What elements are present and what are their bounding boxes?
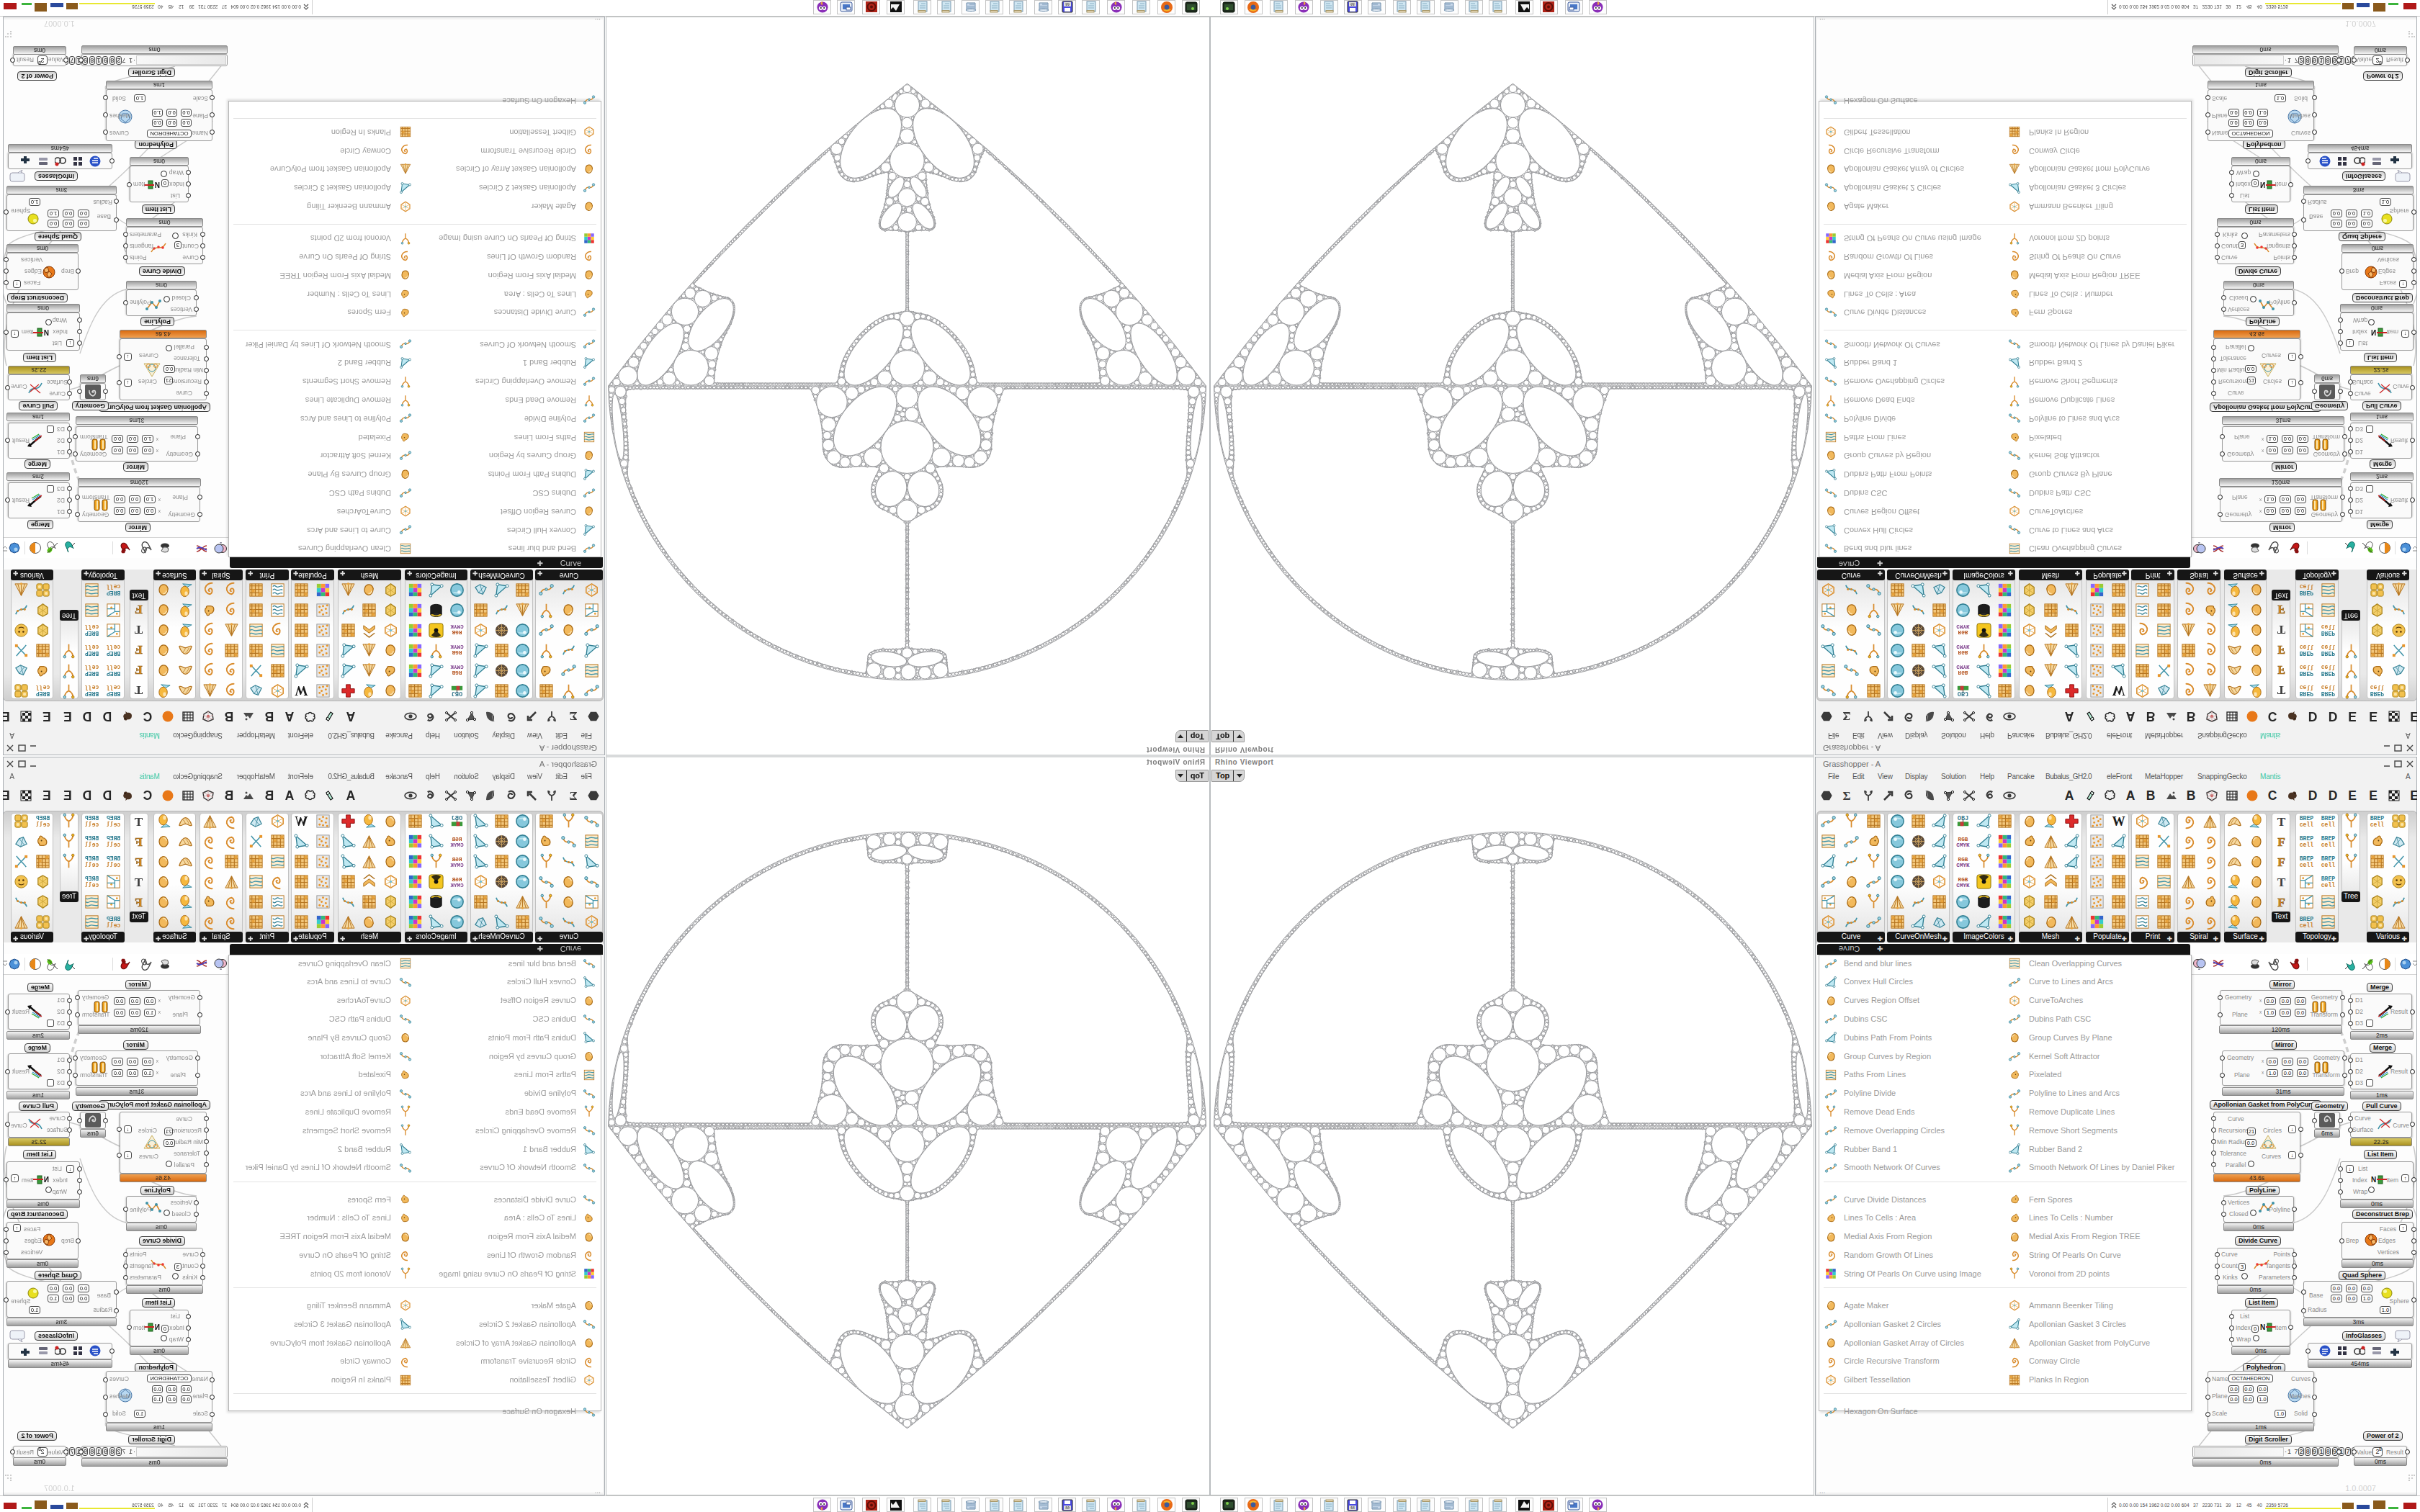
svg-text:64: 64 [1350,2,1355,6]
svg-text:B: B [2146,710,2156,723]
svg-text:64: 64 [1065,2,1070,6]
svg-text:D: D [2329,789,2338,802]
svg-text:E: E [63,710,72,723]
svg-text:A: A [346,789,355,802]
svg-text:A: A [2126,789,2136,802]
svg-text:D: D [2329,710,2338,723]
svg-text:E: E [42,789,51,802]
svg-text:E: E [2348,789,2357,802]
svg-text:Σ: Σ [569,789,577,802]
svg-text:N: N [44,328,49,336]
svg-text:E: E [42,710,51,723]
svg-text:Σ: Σ [1842,710,1850,723]
svg-text:N: N [2260,1323,2265,1331]
svg-text:C: C [2268,710,2277,723]
svg-text:E: E [2410,710,2417,723]
svg-text:64: 64 [1350,1506,1355,1510]
svg-text:N: N [44,1176,49,1184]
svg-text:E: E [63,789,72,802]
svg-text:A: A [2065,710,2074,723]
svg-text:A: A [284,710,294,723]
svg-text:B: B [2146,789,2156,802]
svg-text:D: D [103,789,112,802]
svg-text:B: B [265,710,274,723]
svg-text:E: E [3,789,10,802]
svg-text:N: N [155,1323,160,1331]
svg-text:D: D [83,789,92,802]
svg-text:D: D [83,710,92,723]
svg-text:A: A [346,710,355,723]
svg-text:E: E [2410,789,2417,802]
svg-text:C: C [143,710,152,723]
svg-text:N: N [155,181,160,189]
svg-text:A: A [2126,710,2136,723]
svg-text:E: E [3,710,10,723]
svg-text:C: C [2268,789,2277,802]
svg-text:N: N [2371,1176,2376,1184]
svg-text:N: N [2371,328,2376,336]
svg-text:C: C [143,789,152,802]
svg-text:B: B [2187,710,2196,723]
svg-text:B: B [225,789,234,802]
svg-text:B: B [225,710,234,723]
svg-text:A: A [2065,789,2074,802]
svg-text:E: E [2369,710,2378,723]
svg-text:Σ: Σ [1842,789,1850,802]
svg-text:D: D [2308,789,2318,802]
svg-text:A: A [284,789,294,802]
svg-text:B: B [2187,789,2196,802]
svg-text:64: 64 [1065,1506,1070,1510]
svg-text:Σ: Σ [569,710,577,723]
svg-text:E: E [2348,710,2357,723]
svg-text:B: B [265,789,274,802]
svg-text:D: D [2308,710,2318,723]
svg-text:D: D [103,710,112,723]
svg-text:E: E [2369,789,2378,802]
svg-text:N: N [2260,181,2265,189]
